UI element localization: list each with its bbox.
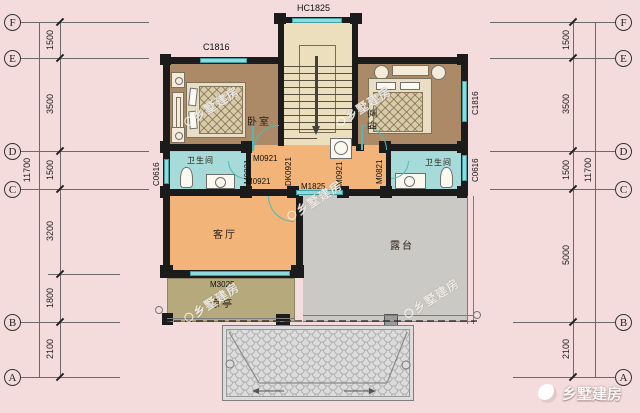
sink-bowl <box>404 176 415 187</box>
grid-line-a-right <box>513 377 615 378</box>
dim-label: 3500 <box>561 84 571 124</box>
column <box>380 186 392 198</box>
room-label-bathroom-left: 卫生间 <box>187 155 214 166</box>
label-window-bedroom-left: C1816 <box>203 42 230 52</box>
toilet <box>180 167 193 188</box>
grid-bubble-a-left: A <box>4 369 21 386</box>
grid-line-c-left <box>21 189 149 190</box>
grid-bubble-d-left: D <box>4 143 21 160</box>
dim-label: 5000 <box>561 235 571 275</box>
grid-line-e-left <box>21 58 149 59</box>
dimension-line-left <box>60 22 61 377</box>
dim-label: 1500 <box>45 150 55 190</box>
grid-line-c-right <box>490 189 615 190</box>
grid-line-b-right <box>513 322 615 323</box>
sink-bowl <box>215 177 226 188</box>
dim-label: 1500 <box>561 150 571 190</box>
column <box>350 13 362 24</box>
dimension-line-right <box>573 22 574 377</box>
dim-label: 3500 <box>45 84 55 124</box>
door-leaf <box>252 125 254 151</box>
label-door-bedroom-left: M0921 <box>253 154 277 163</box>
grid-line-f-left <box>21 22 149 23</box>
nightstand-knob <box>175 132 183 140</box>
wall <box>344 189 468 196</box>
wall <box>163 189 294 196</box>
dim-label: 1500 <box>45 20 55 60</box>
terrace-railing-bottom <box>303 315 475 322</box>
window-bedroom-right <box>462 81 467 122</box>
column <box>160 141 170 153</box>
dim-label: 1800 <box>45 278 55 318</box>
label-door-hall-left: M0921 <box>246 177 270 186</box>
grid-bubble-b-right: B <box>615 314 632 331</box>
column <box>160 54 171 65</box>
window-bathroom-right <box>462 155 467 181</box>
wall <box>163 144 253 151</box>
dimension-line-total-right <box>595 22 596 377</box>
grid-line-a-left <box>21 377 120 378</box>
grid-bubble-e-right: E <box>615 50 632 67</box>
label-window-bathroom-right: C0616 <box>471 158 480 182</box>
nightstand-knob <box>175 77 183 85</box>
dim-label: 1500 <box>561 20 571 60</box>
window-bedroom-left <box>200 58 247 63</box>
dim-total-label: 11700 <box>583 150 593 190</box>
column <box>457 141 468 153</box>
room-label-bathroom-right: 卫生间 <box>425 157 452 168</box>
stair-rail <box>315 56 318 130</box>
dim-label: 2100 <box>561 329 571 369</box>
column <box>160 186 170 198</box>
door-leaf <box>361 125 363 150</box>
room-label-terrace: 露台 <box>390 237 414 252</box>
pillow <box>188 88 198 107</box>
wall <box>388 144 468 151</box>
brand-watermark: 乡墅建房 <box>538 383 622 404</box>
wall <box>356 57 468 64</box>
label-stair-opening: DK0921 <box>284 157 293 186</box>
grid-line-e-right <box>490 58 615 59</box>
pillow <box>400 82 420 90</box>
label-window-bathroom-left: C0616 <box>152 162 161 186</box>
column <box>291 265 304 278</box>
label-window-bedroom-right: C1816 <box>471 91 480 115</box>
floor-plan-canvas: F E D C B A 1500 3500 1500 3200 1800 210… <box>0 0 640 413</box>
column <box>457 54 468 65</box>
grid-bubble-c-right: C <box>615 181 632 198</box>
toilet <box>440 167 453 188</box>
stool <box>431 65 446 80</box>
terrace-floor <box>303 196 467 322</box>
column <box>241 141 252 153</box>
grid-bubble-f-right: F <box>615 14 632 31</box>
label-stair-window: HC1825 <box>297 3 330 13</box>
grid-line-d-right <box>490 151 615 152</box>
dim-label: 2100 <box>45 329 55 369</box>
room-label-living: 客厅 <box>213 226 237 241</box>
grid-bubble-f-left: F <box>4 14 21 31</box>
door-pavilion <box>190 271 290 276</box>
grid-bubble-c-left: C <box>4 181 21 198</box>
dimension-line-total-left <box>39 22 40 377</box>
dresser <box>392 65 429 76</box>
grid-bubble-d-right: D <box>615 143 632 160</box>
nightstand <box>171 127 185 143</box>
grid-bubble-e-left: E <box>4 50 21 67</box>
column <box>160 265 173 278</box>
dim-label: 3200 <box>45 211 55 251</box>
grid-line-d-left <box>21 151 149 152</box>
wechat-logo-icon <box>538 384 557 403</box>
porch-roof <box>222 325 414 401</box>
column <box>274 13 286 24</box>
wall <box>352 17 358 146</box>
stair-treads-lower <box>284 132 317 146</box>
grid-line-b-left <box>21 322 120 323</box>
room-label-bedroom-left: 卧室 <box>247 113 271 128</box>
window-stair <box>292 18 342 23</box>
terrace-railing-right <box>467 196 474 324</box>
dim-total-label: 11700 <box>22 150 32 190</box>
window-bathroom-left <box>164 159 169 184</box>
grid-line-f-right <box>490 22 615 23</box>
nightstand <box>171 72 185 88</box>
grid-bubble-b-left: B <box>4 314 21 331</box>
brand-text: 乡墅建房 <box>562 383 622 404</box>
column <box>240 186 252 198</box>
label-door-bath-right: M0821 <box>375 160 384 184</box>
stair-cabinet-basin <box>334 141 348 155</box>
